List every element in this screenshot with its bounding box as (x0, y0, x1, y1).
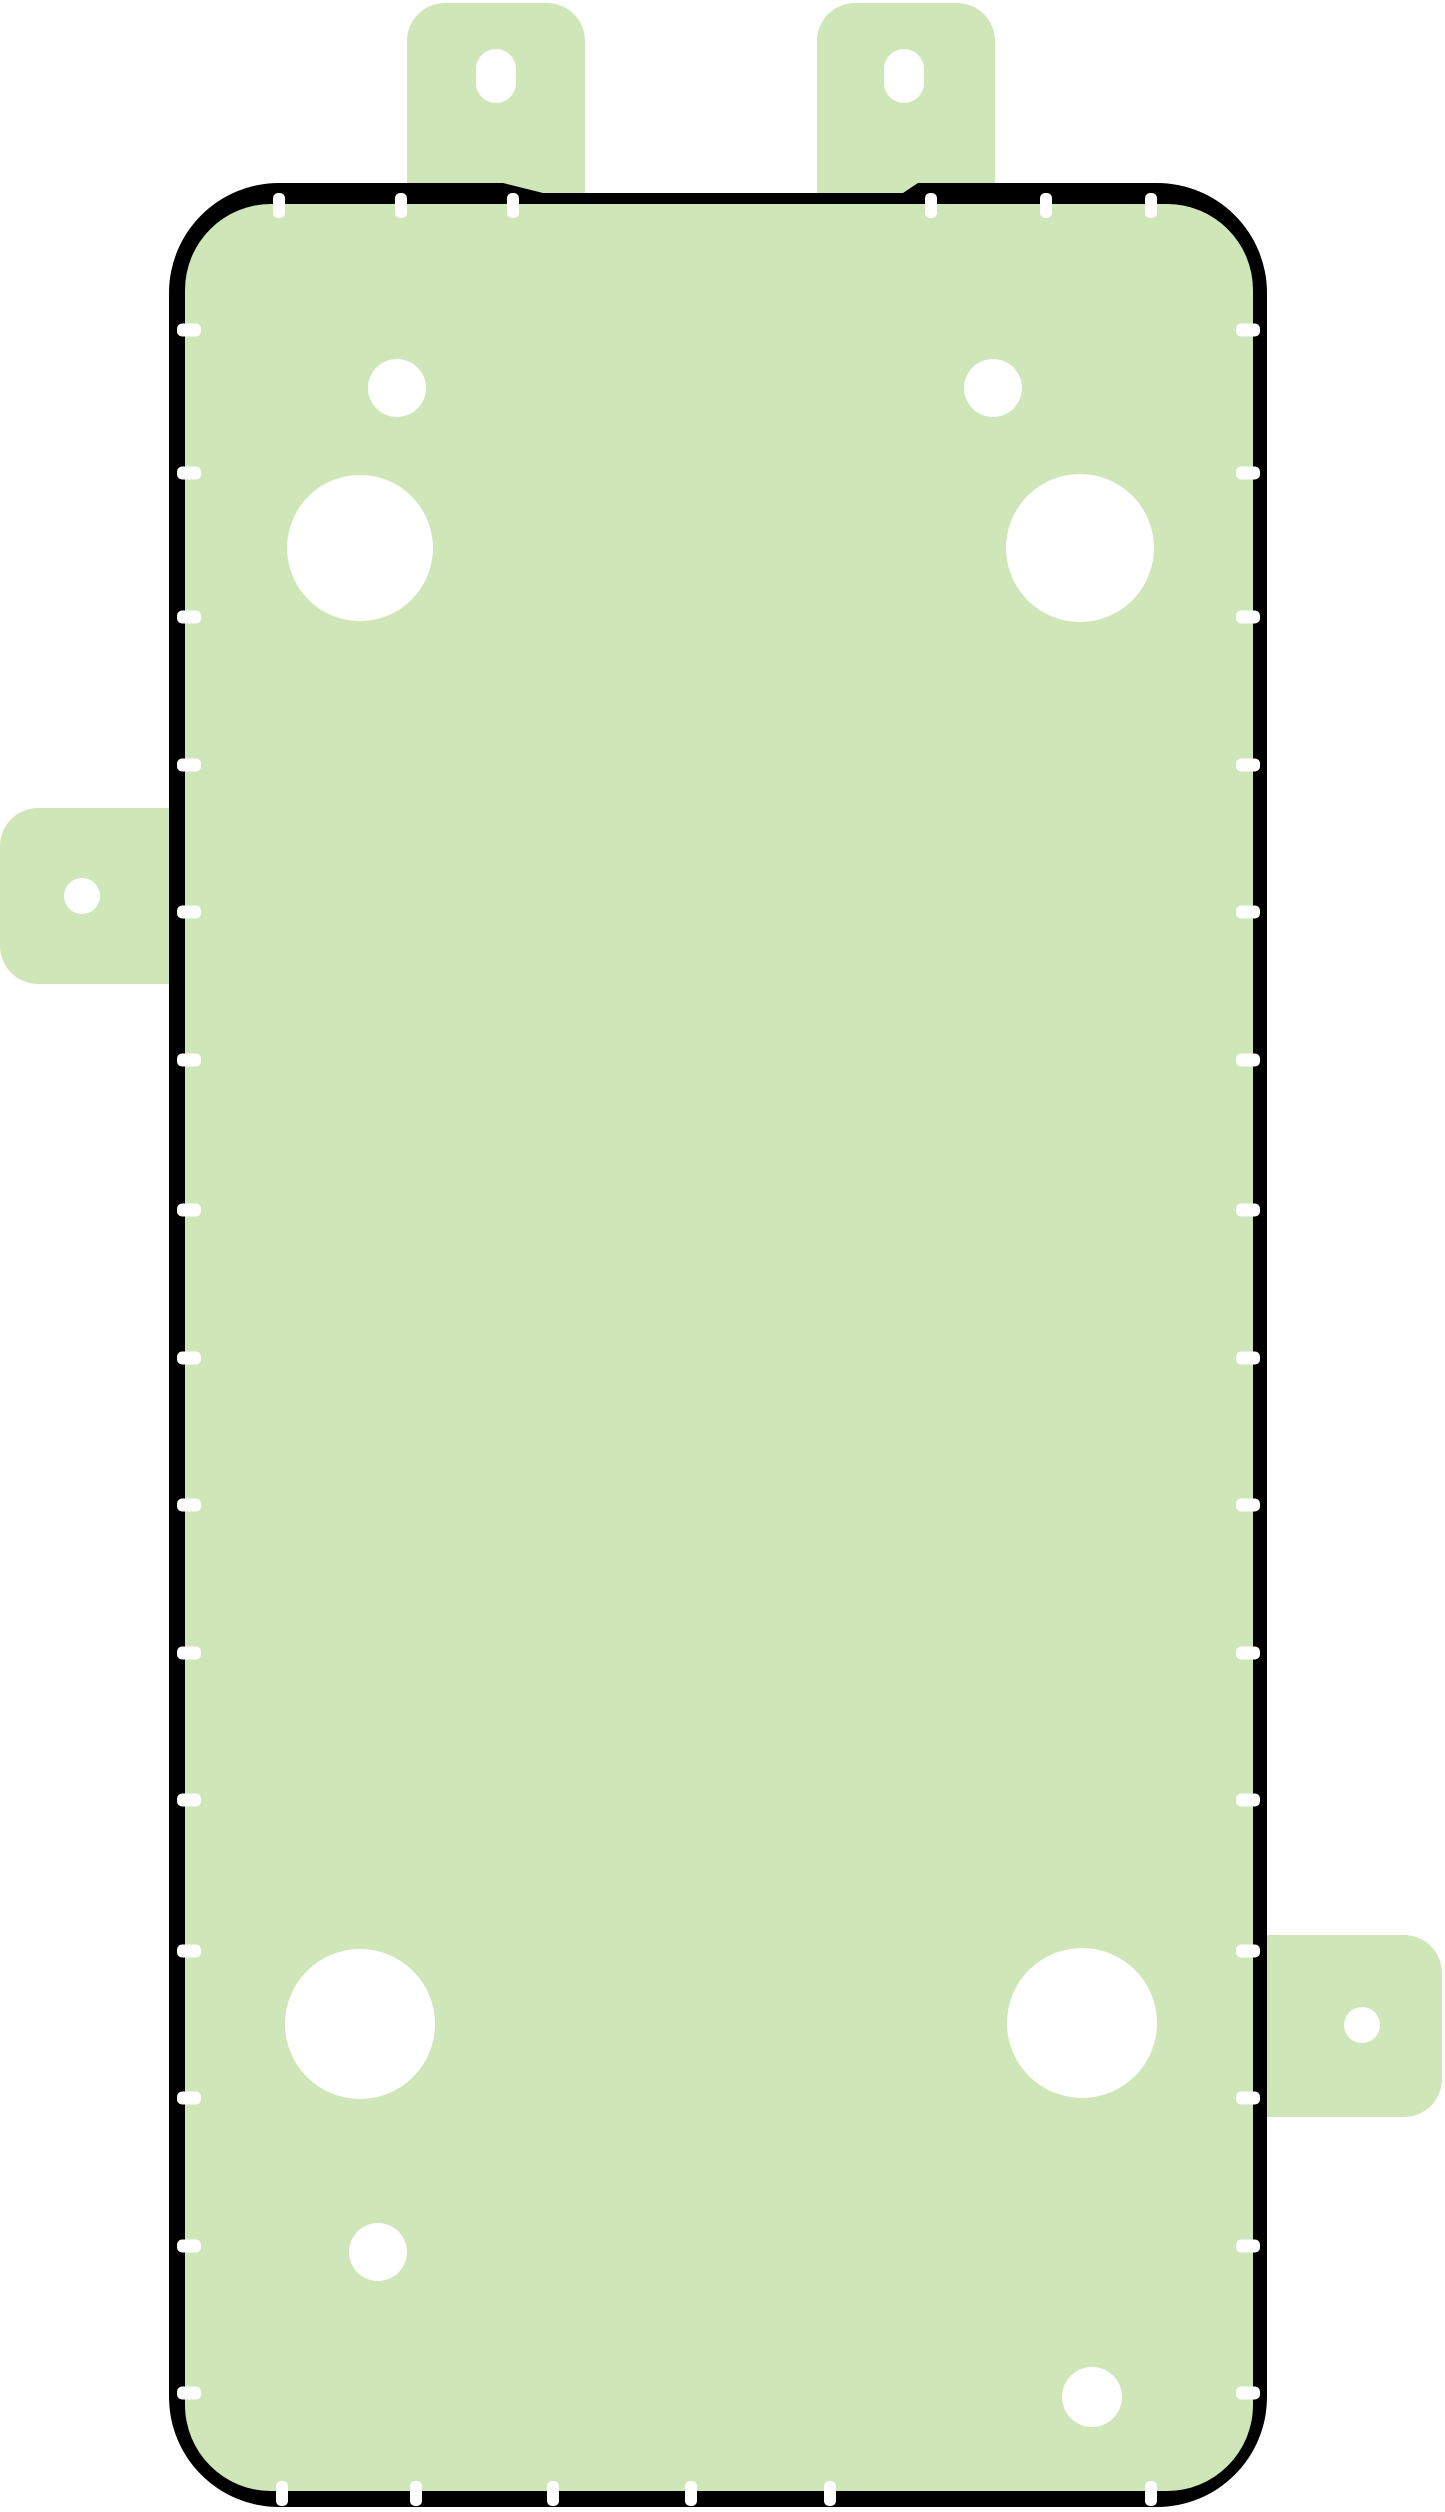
cutout-large-upper-left (287, 475, 433, 621)
alignment-tick-right (1236, 1204, 1260, 1217)
alignment-tick-right (1236, 1945, 1260, 1958)
alignment-tick-left (177, 1499, 201, 1512)
alignment-tick-right (1236, 324, 1260, 337)
alignment-tick-left (177, 1054, 201, 1067)
alignment-tick-top (273, 193, 285, 218)
alignment-tick-bottom (685, 2481, 697, 2506)
alignment-tick-right (1236, 2240, 1260, 2253)
cutout-small-upper-left (368, 359, 426, 417)
alignment-tick-right (1236, 1054, 1260, 1067)
alignment-tick-left (177, 611, 201, 624)
alignment-tick-left (177, 2240, 201, 2253)
pull-tab-top-left-hole (476, 49, 516, 103)
alignment-tick-top (1145, 193, 1157, 218)
alignment-tick-left (177, 2387, 201, 2400)
alignment-tick-left (177, 1647, 201, 1660)
adhesive-sticker-svg (0, 0, 1445, 2512)
alignment-tick-right (1236, 467, 1260, 480)
cutout-small-upper-right (964, 359, 1022, 417)
alignment-tick-right (1236, 1647, 1260, 1660)
cutout-small-lower-right (1062, 2367, 1122, 2427)
alignment-tick-right (1236, 1794, 1260, 1807)
alignment-tick-right (1236, 906, 1260, 919)
alignment-tick-left (177, 324, 201, 337)
alignment-tick-bottom (547, 2481, 559, 2506)
alignment-tick-right (1236, 2387, 1260, 2400)
cutout-large-lower-left (285, 1949, 435, 2099)
alignment-tick-bottom (824, 2481, 836, 2506)
cutout-large-upper-right (1006, 474, 1154, 622)
alignment-tick-top (925, 193, 937, 218)
cutout-large-lower-right (1007, 1948, 1157, 2098)
alignment-tick-left (177, 2092, 201, 2105)
alignment-tick-right (1236, 2092, 1260, 2105)
alignment-tick-left (177, 1794, 201, 1807)
alignment-tick-left (177, 1204, 201, 1217)
alignment-tick-bottom (410, 2481, 422, 2506)
alignment-tick-left (177, 1945, 201, 1958)
alignment-tick-top (1040, 193, 1052, 218)
alignment-tick-left (177, 467, 201, 480)
cutout-small-lower-left (349, 2223, 407, 2281)
pull-tab-left-hole (64, 878, 100, 914)
alignment-tick-right (1236, 611, 1260, 624)
alignment-tick-right (1236, 759, 1260, 772)
alignment-tick-right (1236, 1352, 1260, 1365)
alignment-tick-top (395, 193, 407, 218)
alignment-tick-right (1236, 1499, 1260, 1512)
adhesive-sticker-diagram (0, 0, 1445, 2512)
pull-tab-right-hole (1344, 2007, 1380, 2043)
alignment-tick-bottom (1145, 2481, 1157, 2506)
alignment-tick-left (177, 1352, 201, 1365)
alignment-tick-left (177, 906, 201, 919)
pull-tab-top-right-hole (884, 49, 924, 103)
alignment-tick-left (177, 759, 201, 772)
alignment-tick-top (507, 193, 519, 218)
alignment-tick-bottom (276, 2481, 288, 2506)
